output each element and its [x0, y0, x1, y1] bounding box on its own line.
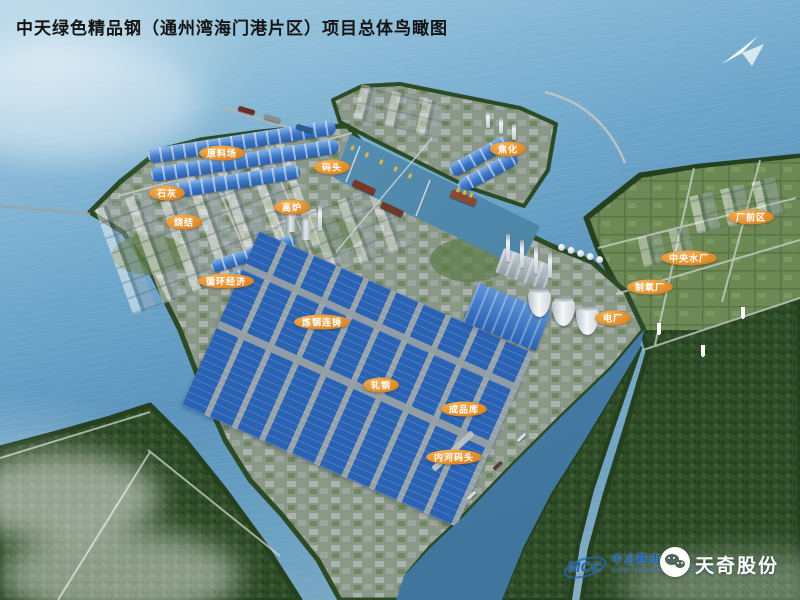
- map-label-sintering: 烧结: [166, 215, 202, 230]
- map-label-raw-material-yard: 原料场: [199, 146, 245, 161]
- map-label-oxygen-plant: 制氧厂: [627, 280, 673, 295]
- wind-turbine-icon: [702, 348, 704, 357]
- map-label-finished-goods-warehouse: 成品库: [441, 402, 487, 417]
- map-label-blast-furnace: 高炉: [274, 200, 310, 215]
- map-label-lime: 石灰: [149, 186, 185, 201]
- map-label-power-plant: 电厂: [595, 311, 631, 326]
- map-label-steelmaking-casting: 炼钢连铸: [294, 315, 350, 330]
- north-arrow-icon: [722, 34, 766, 72]
- power-stack: [520, 240, 524, 268]
- map-label-coking: 焦化: [490, 142, 526, 157]
- power-stack: [534, 246, 538, 274]
- map-label-circular-economy: 循环经济: [198, 274, 254, 289]
- power-stack: [548, 252, 552, 278]
- map-label-plant-front-area: 厂前区: [728, 210, 774, 225]
- map-label-inland-river-dock: 内河码头: [426, 450, 482, 465]
- map-label-dock: 码头: [314, 160, 350, 175]
- wechat-icon: [660, 547, 690, 577]
- mcc-logo: MCC: [562, 555, 608, 579]
- page-title: 中天绿色精品钢（通州湾海门港片区）项目总体鸟瞰图: [16, 14, 448, 39]
- power-stack: [506, 234, 510, 262]
- wind-turbine-icon: [658, 326, 660, 335]
- wind-turbine-icon: [742, 310, 744, 319]
- map-label-rolling-mill: 轧钢: [363, 378, 399, 393]
- aerial-rendering: 中天绿色精品钢（通州湾海门港片区）项目总体鸟瞰图 原料场 码头 石灰 高炉 烧结…: [0, 0, 800, 600]
- map-label-central-water-plant: 中央水厂: [661, 251, 717, 266]
- watermark-tianqi: 天奇股份: [695, 551, 779, 578]
